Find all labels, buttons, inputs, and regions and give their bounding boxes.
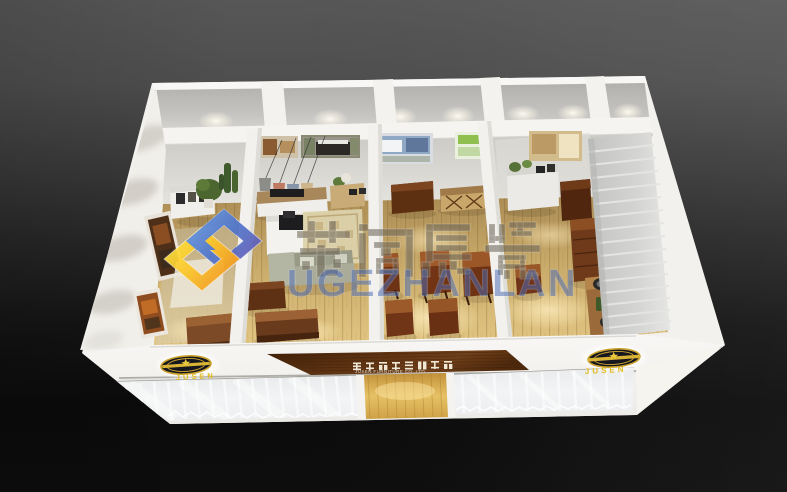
svg-text:JUSEN FURNITURE CO.,LTD: JUSEN FURNITURE CO.,LTD: [355, 369, 425, 374]
svg-text:UGEZHANLAN: UGEZHANLAN: [287, 263, 578, 305]
